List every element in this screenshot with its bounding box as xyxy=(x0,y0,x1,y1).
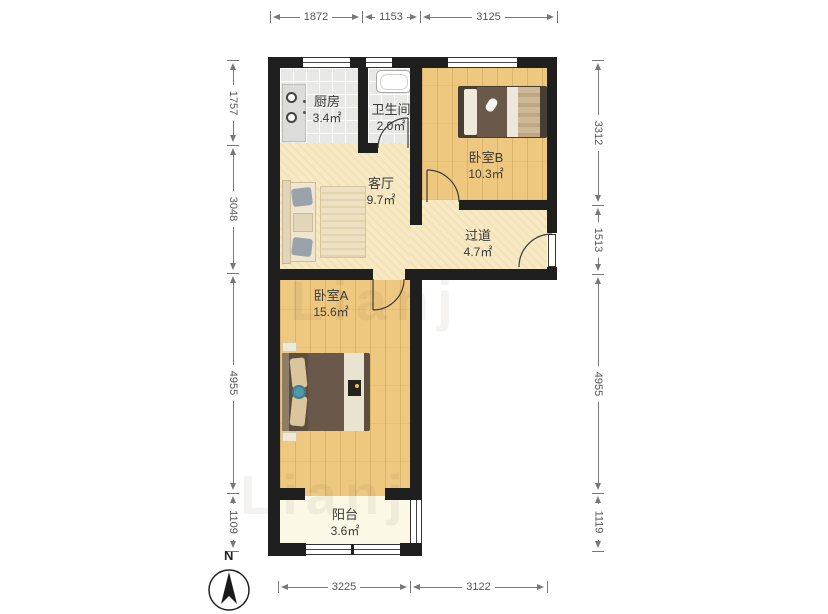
bed-tray xyxy=(348,380,361,396)
dim-right-3: 4955 xyxy=(591,274,605,493)
room-name: 厨房 xyxy=(297,94,357,111)
stove-burner-icon xyxy=(286,92,297,103)
room-label-bathroom: 卫生间 2.0㎡ xyxy=(359,102,423,134)
room-area: 9.7㎡ xyxy=(350,193,412,209)
window-bathroom xyxy=(366,57,392,68)
room-label-living: 客厅 9.7㎡ xyxy=(350,176,412,208)
dim-tick xyxy=(270,11,271,23)
dim-top-2: 1153 xyxy=(362,10,420,24)
wall-bathroom-stub xyxy=(358,143,378,153)
wall-bedroom-b-bottom xyxy=(459,200,547,210)
room-label-balcony: 阳台 3.6㎡ xyxy=(314,507,376,539)
sofa-pillow xyxy=(291,237,313,257)
dim-tick xyxy=(227,273,239,274)
dim-arrow xyxy=(362,14,372,20)
dim-right-1: 3312 xyxy=(591,60,605,205)
bed-runner xyxy=(507,87,518,137)
dim-arrow xyxy=(410,584,420,590)
dim-tick xyxy=(592,274,604,275)
dim-line xyxy=(233,155,234,191)
dim-arrow xyxy=(595,483,601,493)
dim-arrow xyxy=(230,273,236,283)
wardrobe xyxy=(518,87,540,137)
dim-label: 3048 xyxy=(227,197,239,221)
dim-left-4: 1109 xyxy=(226,493,240,551)
dim-label-box: 4955 xyxy=(586,366,610,402)
dim-arrow xyxy=(410,14,420,20)
wall-living-bedroom-a xyxy=(280,269,373,280)
window-bedroom-b xyxy=(448,57,517,68)
wall-balcony-bottom-right xyxy=(400,543,422,556)
dim-tick xyxy=(227,493,239,494)
bed-duvet xyxy=(477,87,507,137)
bed-bedroom-a xyxy=(282,353,370,431)
candle-icon xyxy=(355,384,359,388)
dim-label: 1513 xyxy=(592,227,604,251)
dim-label-box: 3048 xyxy=(221,191,245,227)
dim-arrow xyxy=(270,14,280,20)
dim-line xyxy=(505,17,547,18)
dim-tick xyxy=(592,205,604,206)
dim-top-3: 3125 xyxy=(420,10,557,24)
dim-right-2: 1513 xyxy=(591,205,605,274)
wall-bedroom-a-right xyxy=(410,280,422,488)
dim-label-box: 1109 xyxy=(221,504,245,540)
room-area: 4.7㎡ xyxy=(447,245,509,261)
dim-tick xyxy=(547,581,548,593)
dim-tick xyxy=(227,551,239,552)
nightstand xyxy=(282,342,297,352)
dim-arrow xyxy=(400,584,410,590)
room-name: 卫生间 xyxy=(359,102,423,119)
window-balcony-right xyxy=(410,500,422,543)
dim-label-box: 3312 xyxy=(586,115,610,151)
dim-arrow xyxy=(595,493,601,503)
dim-arrow xyxy=(595,60,601,70)
dim-arrow xyxy=(278,584,288,590)
room-area: 3.6㎡ xyxy=(314,524,376,540)
dim-label: 1757 xyxy=(227,90,239,114)
dim-line xyxy=(288,587,328,588)
bed-bedroom-b xyxy=(458,86,547,138)
dim-label-box: 1119 xyxy=(587,504,610,540)
stove-burner-icon xyxy=(286,112,297,123)
dim-label: 1109 xyxy=(227,510,239,534)
dim-arrow xyxy=(230,541,236,551)
dim-arrow xyxy=(595,541,601,551)
dim-label: 4955 xyxy=(592,371,604,395)
compass-arrow-icon xyxy=(221,572,237,604)
dim-left-2: 3048 xyxy=(226,145,240,273)
room-label-kitchen: 厨房 3.4㎡ xyxy=(297,94,357,126)
dim-bottom-1: 3225 xyxy=(278,580,410,594)
floorplan-canvas: Lianj Lianj xyxy=(0,0,828,614)
dim-label: 1119 xyxy=(592,511,604,534)
room-area: 10.3㎡ xyxy=(450,167,522,183)
bed-pillow xyxy=(464,89,477,135)
room-name: 阳台 xyxy=(314,507,376,524)
nightstand xyxy=(282,432,297,442)
window-mullion xyxy=(351,544,354,555)
wall-balcony-top-right xyxy=(385,488,422,500)
wall-left xyxy=(268,57,280,556)
room-area: 2.0㎡ xyxy=(359,119,423,135)
room-name: 卧室A xyxy=(295,288,367,305)
dim-line xyxy=(233,401,234,483)
room-name: 卧室B xyxy=(450,150,522,167)
dim-label-box: 4955 xyxy=(221,365,245,401)
window-kitchen xyxy=(303,57,350,68)
dim-line xyxy=(233,121,234,136)
room-name: 客厅 xyxy=(350,176,412,193)
dim-tick xyxy=(592,551,604,552)
dim-label-box: 1757 xyxy=(221,85,245,121)
dim-top-1: 1872 xyxy=(270,10,362,24)
dim-label: 3122 xyxy=(462,581,494,593)
room-area: 3.4㎡ xyxy=(297,111,357,127)
dim-line xyxy=(233,70,234,85)
dim-label: 3312 xyxy=(592,120,604,144)
bed-runner xyxy=(344,353,364,431)
dim-tick xyxy=(227,145,239,146)
dim-right-4: 1119 xyxy=(591,493,605,551)
bed-pillow xyxy=(289,357,307,388)
dim-bottom-2: 3122 xyxy=(410,580,547,594)
dim-tick xyxy=(592,493,604,494)
dim-arrow xyxy=(595,205,601,215)
dim-line xyxy=(495,587,537,588)
bathtub xyxy=(376,70,411,93)
dim-arrow xyxy=(595,274,601,284)
dim-line xyxy=(360,587,400,588)
dim-arrow xyxy=(547,14,557,20)
entrance-door-leaf xyxy=(548,234,556,267)
dim-line xyxy=(233,283,234,365)
wall-balcony-top-left xyxy=(268,488,305,500)
dim-arrow xyxy=(352,14,362,20)
wall-middle-block xyxy=(405,269,422,280)
dim-tick xyxy=(278,581,279,593)
dim-line xyxy=(598,402,599,484)
sofa xyxy=(282,180,318,264)
sofa-pillow xyxy=(291,187,313,207)
dim-label-box: 1513 xyxy=(586,222,610,258)
dim-arrow xyxy=(420,14,430,20)
room-area: 15.6㎡ xyxy=(295,305,367,321)
dim-label: 4955 xyxy=(227,371,239,395)
dim-left-1: 1757 xyxy=(226,60,240,145)
dim-tick xyxy=(557,11,558,23)
room-name: 过道 xyxy=(447,228,509,245)
dim-label: 3225 xyxy=(328,581,360,593)
dim-arrow xyxy=(230,60,236,70)
dim-tick xyxy=(420,11,421,23)
dim-arrow xyxy=(230,135,236,145)
dim-line xyxy=(598,151,599,196)
dim-left-3: 4955 xyxy=(226,273,240,493)
sofa-cushion xyxy=(293,213,313,232)
dim-tick xyxy=(410,581,411,593)
room-label-hallway: 过道 4.7㎡ xyxy=(447,228,509,260)
dim-line xyxy=(420,587,462,588)
dim-line xyxy=(430,17,472,18)
dim-arrow xyxy=(230,483,236,493)
dim-arrow xyxy=(230,493,236,503)
bed-pillow xyxy=(289,395,307,426)
dim-line xyxy=(598,284,599,366)
dim-line xyxy=(332,17,352,18)
dim-label: 1153 xyxy=(375,11,407,23)
dim-arrow xyxy=(230,263,236,273)
wall-balcony-bottom-left xyxy=(268,543,306,556)
bed-headboard xyxy=(282,353,289,431)
dim-arrow xyxy=(537,584,547,590)
bathtub-basin xyxy=(380,74,408,90)
dim-arrow xyxy=(230,145,236,155)
dim-line xyxy=(598,70,599,115)
bed-plate xyxy=(292,385,306,399)
room-label-bedroom-a: 卧室A 15.6㎡ xyxy=(295,288,367,320)
dim-line xyxy=(280,17,300,18)
wall-hallway-bottom xyxy=(422,269,557,280)
room-label-bedroom-b: 卧室B 10.3㎡ xyxy=(450,150,522,182)
compass-circle xyxy=(209,570,249,610)
dim-tick xyxy=(227,60,239,61)
dim-tick xyxy=(362,11,363,23)
dim-line xyxy=(233,227,234,263)
bed-duvet xyxy=(308,353,344,431)
dim-tick xyxy=(592,60,604,61)
wall-right-upper xyxy=(547,57,557,233)
dim-arrow xyxy=(595,264,601,274)
dim-label: 3125 xyxy=(472,11,504,23)
dim-label: 1872 xyxy=(300,11,332,23)
dim-arrow xyxy=(595,195,601,205)
